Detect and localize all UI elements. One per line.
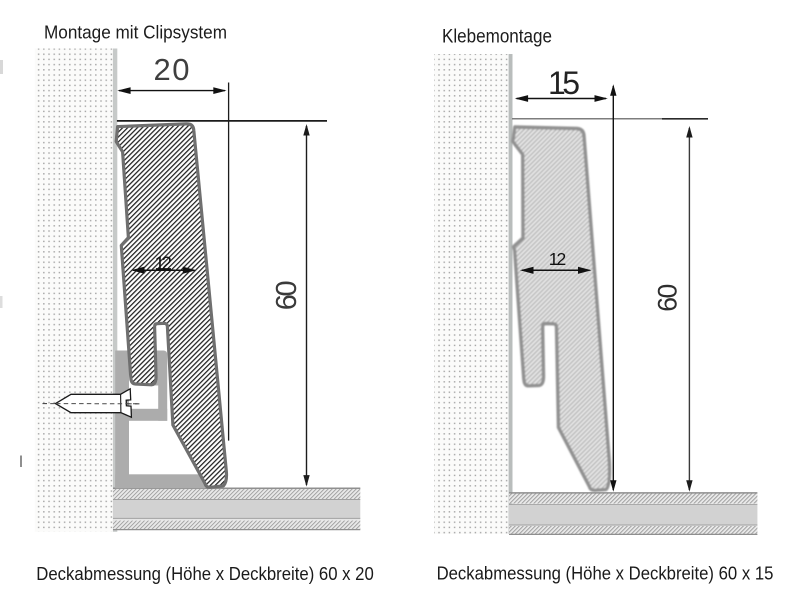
svg-text:12: 12 [154,252,172,273]
svg-text:20: 20 [154,52,190,87]
svg-text:Montage mit Clipsystem: Montage mit Clipsystem [44,21,227,42]
svg-text:Klebemontage: Klebemontage [442,26,552,47]
svg-text:12: 12 [549,249,567,269]
svg-text:Deckabmessung (Höhe x Deckbrei: Deckabmessung (Höhe x Deckbreite) 60 x 1… [437,563,774,583]
svg-text:60: 60 [652,284,682,312]
svg-text:60: 60 [271,280,303,310]
svg-text:15: 15 [548,65,580,101]
svg-text:Deckabmessung (Höhe x Deckbrei: Deckabmessung (Höhe x Deckbreite) 60 x 2… [36,564,374,584]
